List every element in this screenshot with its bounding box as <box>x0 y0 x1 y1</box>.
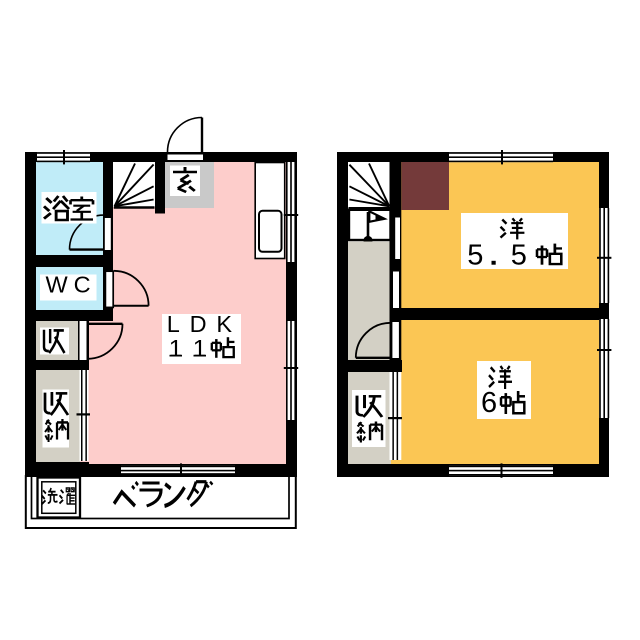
svg-text:LDK: LDK <box>167 311 242 337</box>
svg-text:1: 1 <box>169 336 183 363</box>
svg-text:6: 6 <box>481 387 497 419</box>
svg-text:5: 5 <box>511 240 527 272</box>
svg-text:1: 1 <box>193 336 207 363</box>
svg-text:5: 5 <box>467 240 483 272</box>
svg-text:WC: WC <box>46 272 97 298</box>
